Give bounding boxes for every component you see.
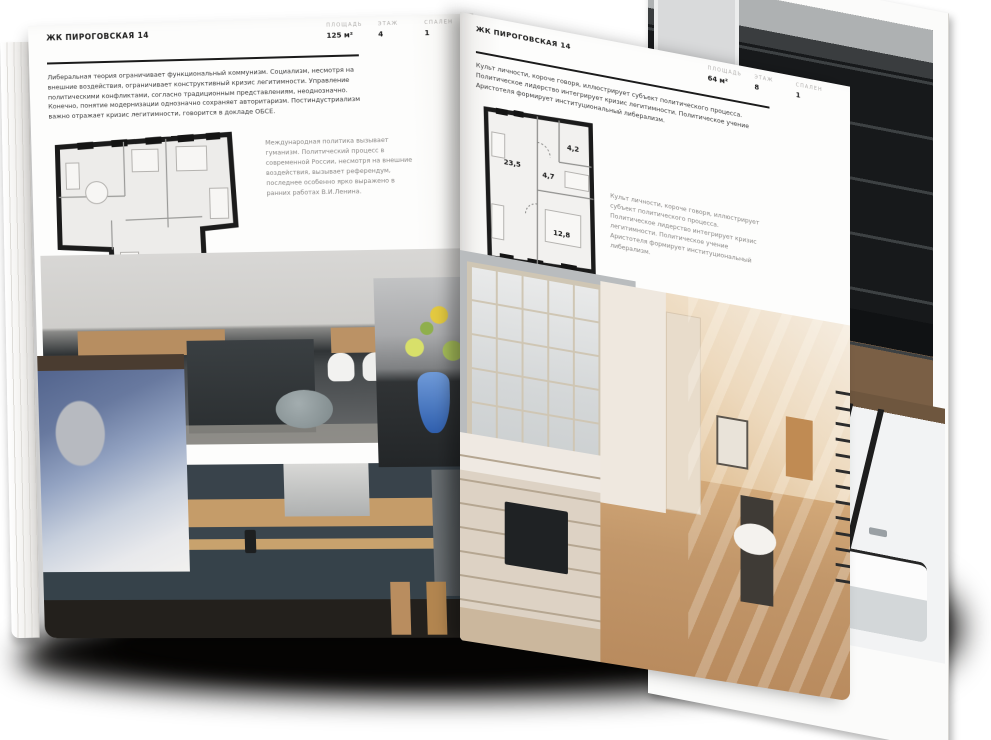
stat-area: ПЛОЩАДЬ 64 м²: [708, 65, 742, 88]
left-page: ЖК ПИРОГОВСКАЯ 14 ПЛОЩАДЬ 125 м² ЭТАЖ 4 …: [28, 14, 491, 639]
blue-vase: [417, 372, 451, 433]
picture-frames: [716, 415, 748, 470]
left-page-caption: Международная политика вызывает гуманизм…: [265, 135, 416, 199]
white-chair: [327, 352, 354, 381]
bar-stool: [390, 582, 412, 635]
pouf: [275, 389, 333, 428]
photo-bed-pillows: [37, 354, 190, 572]
header-rule: [47, 54, 359, 64]
left-page-body: Либеральная теория ограничивает функцион…: [47, 65, 373, 122]
right-page-header: ЖК ПИРОГОВСКАЯ 14: [476, 25, 571, 51]
rug: [175, 423, 387, 444]
stat-floor: ЭТАЖ 4: [378, 20, 409, 38]
bath-faucet: [869, 527, 887, 538]
right-page: ЖК ПИРОГОВСКАЯ 14 ПЛОЩАДЬ 64 м² ЭТАЖ 8 С…: [460, 12, 850, 701]
window-frames: [835, 391, 850, 589]
right-page-caption: Культ личности, короче говоря, иллюстрир…: [610, 192, 764, 279]
stat-bedrooms: СПАЛЕН 1: [796, 82, 825, 104]
wine-bottle: [245, 530, 257, 553]
flowers: [389, 288, 471, 384]
left-page-stats: ПЛОЩАДЬ 125 м² ЭТАЖ 4 СПАЛЕН 1: [326, 19, 456, 40]
stat-area: ПЛОЩАДЬ 125 м²: [326, 22, 363, 40]
magazine-mockup: ЖК ПИРОГОВСКАЯ 14 ПЛОЩАДЬ 125 м² ЭТАЖ 4 …: [0, 0, 991, 740]
floor-plan-right-drawing: 23,5 4,7 4,2 12,8: [474, 101, 604, 282]
photo-sunny-attic: [600, 281, 850, 701]
bar-stool: [426, 582, 448, 635]
stat-bedrooms: СПАЛЕН 1: [424, 19, 455, 37]
stat-floor: ЭТАЖ 8: [754, 74, 783, 96]
photo-tv-shelf: [460, 432, 618, 665]
wood-armchair: [786, 416, 813, 481]
tv-screen: [505, 502, 568, 574]
kitchen-hood: [283, 463, 370, 516]
left-page-header: ЖК ПИРОГОВСКАЯ 14: [46, 31, 149, 43]
floor-plan-right: 23,5 4,7 4,2 12,8: [474, 101, 604, 282]
brick-wall: [600, 281, 666, 513]
